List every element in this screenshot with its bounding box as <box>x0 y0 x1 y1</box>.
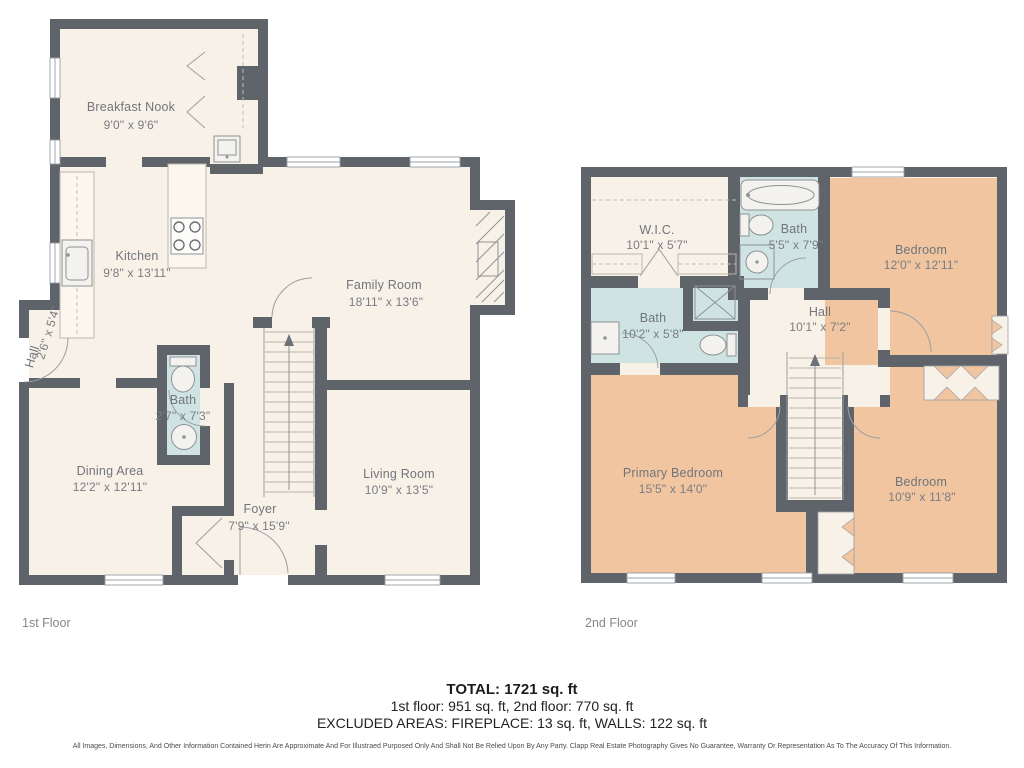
total-area-text: TOTAL: 1721 sq. ft <box>0 681 1024 698</box>
room-label: Dining Area <box>77 464 144 478</box>
kitchen-sink-icon <box>62 240 92 286</box>
room-dims: 10'9" x 11'8" <box>888 490 956 504</box>
room-dims: 2'7" x 7'3" <box>156 409 211 423</box>
room-dims: 9'0" x 9'6" <box>104 118 159 132</box>
room-dims: 10'2" x 5'8" <box>622 327 684 341</box>
room-dims: 15'5" x 14'0" <box>639 482 707 496</box>
excluded-areas-text: EXCLUDED AREAS: FIREPLACE: 13 sq. ft, WA… <box>0 715 1024 732</box>
window <box>852 167 904 177</box>
window <box>287 157 340 167</box>
floor-plan-drawing: Breakfast Nook 9'0" x 9'6" Kitchen 9'8" … <box>0 0 1024 768</box>
bath-sink-icon <box>172 425 197 450</box>
room-label: Primary Bedroom <box>623 466 723 480</box>
floor-plan-page: Breakfast Nook 9'0" x 9'6" Kitchen 9'8" … <box>0 0 1024 768</box>
room-dims: 12'2" x 12'11" <box>73 480 147 494</box>
room-dims: 12'0" x 12'11" <box>884 258 958 272</box>
window <box>50 58 60 98</box>
window <box>903 573 953 583</box>
stove-icon <box>171 218 203 254</box>
room-label: Living Room <box>363 467 435 481</box>
room-dims: 9'8" x 13'11" <box>103 266 171 280</box>
room-dims: 7'9" x 15'9" <box>228 519 290 533</box>
bath-sink-icon <box>591 322 619 354</box>
window <box>410 157 460 167</box>
room-label: Family Room <box>346 278 422 292</box>
room-label: Bedroom <box>895 243 947 257</box>
room-label: Hall <box>809 305 831 319</box>
first-floor-plan: Breakfast Nook 9'0" x 9'6" Kitchen 9'8" … <box>19 24 510 630</box>
room-label: Bath <box>170 393 197 407</box>
room-label: Bath <box>640 311 667 325</box>
toilet-icon <box>170 357 196 392</box>
room-dims: 10'9" x 13'5" <box>365 483 433 497</box>
window <box>105 575 163 585</box>
first-floor-label: 1st Floor <box>22 616 71 630</box>
room-dims: 10'1" x 5'7" <box>626 238 688 252</box>
second-floor-plan: W.I.C. 10'1" x 5'7" Bath 5'5" x 7'9" Bed… <box>585 167 1008 630</box>
window <box>762 573 812 583</box>
area-summary: TOTAL: 1721 sq. ft 1st floor: 951 sq. ft… <box>0 681 1024 732</box>
toilet-icon <box>700 334 736 356</box>
toilet-icon <box>740 214 773 236</box>
second-floor-label: 2nd Floor <box>585 616 638 630</box>
room-dims: 5'5" x 7'9" <box>769 238 824 252</box>
room-dims: 18'11" x 13'6" <box>349 295 423 309</box>
bathtub-icon <box>741 180 819 210</box>
room-dims: 10'1" x 7'2" <box>789 320 851 334</box>
room-label: Foyer <box>244 502 277 516</box>
window <box>50 140 60 164</box>
room-label: Bedroom <box>895 475 947 489</box>
disclaimer-text: All Images, Dimensions, And Other Inform… <box>0 743 1024 750</box>
room-label: Bath <box>781 222 808 236</box>
door-opening <box>238 575 288 585</box>
floor-areas-text: 1st floor: 951 sq. ft, 2nd floor: 770 sq… <box>0 698 1024 715</box>
room-label: Kitchen <box>115 249 158 263</box>
window <box>627 573 675 583</box>
room-label: Breakfast Nook <box>87 100 176 114</box>
window <box>50 243 60 283</box>
window <box>385 575 440 585</box>
room-label: W.I.C. <box>639 223 674 237</box>
